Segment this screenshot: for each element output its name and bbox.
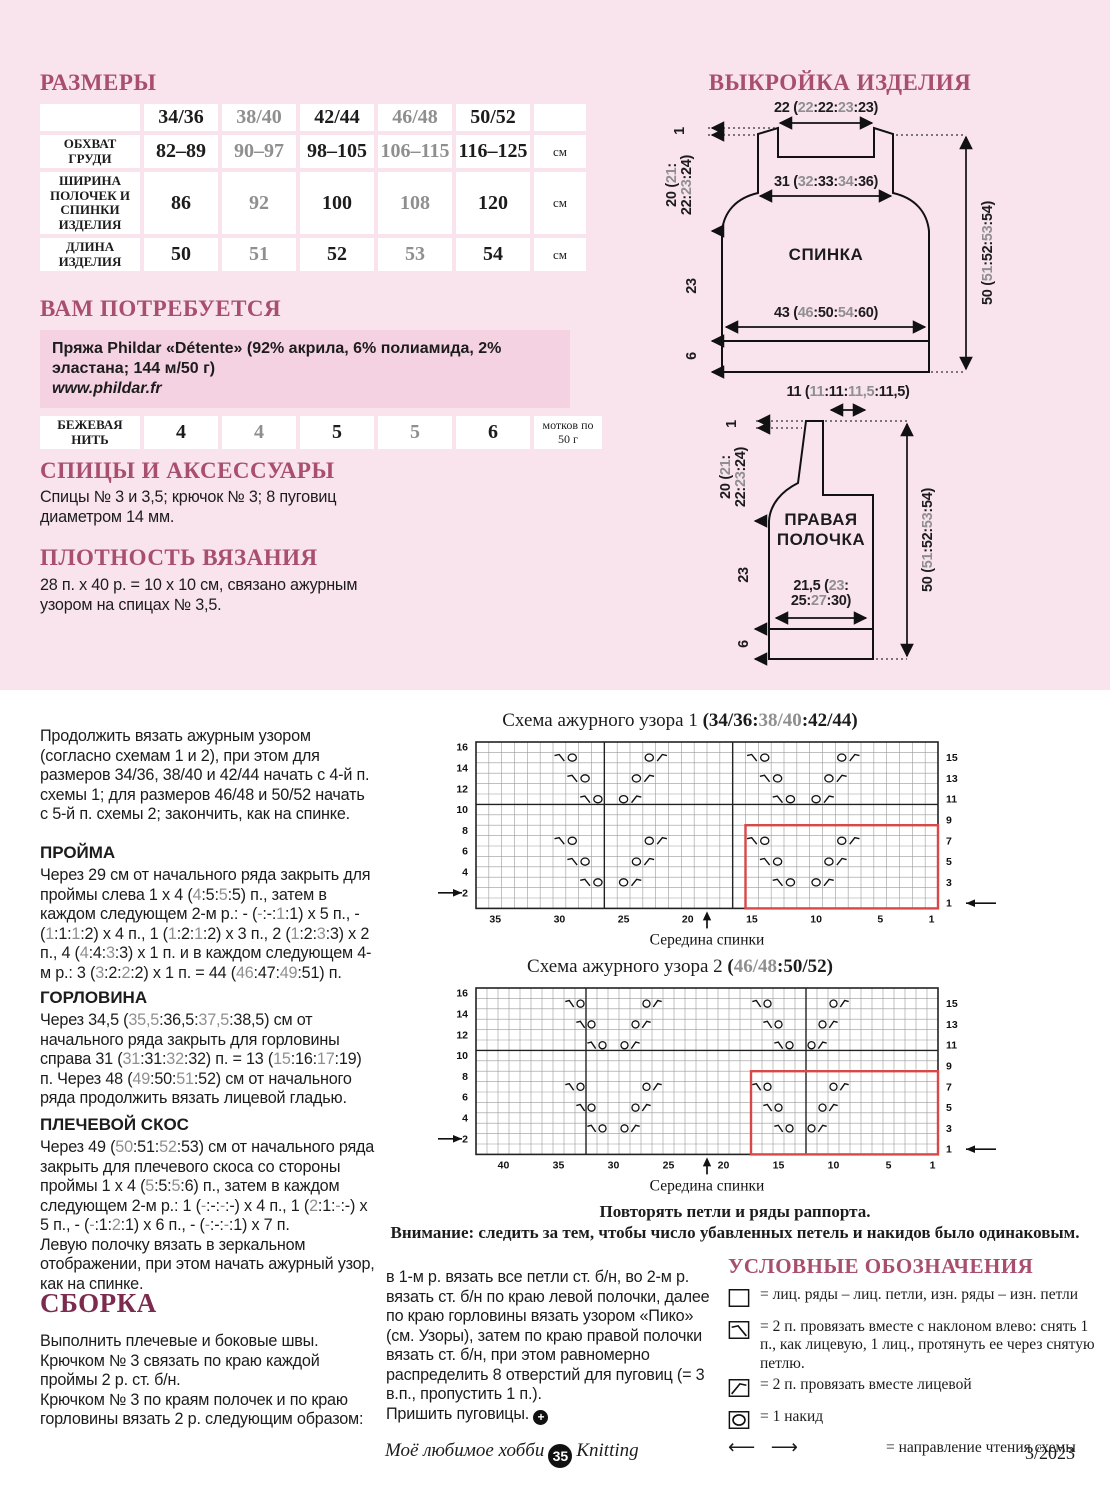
neckline-heading: ГОРЛОВИНА [40, 988, 147, 1008]
back-neck-width-label: 22 (22:22:23:23) [774, 100, 878, 116]
assembly-paragraph: Выполнить плечевые и боковые швы. Крючко… [40, 1332, 376, 1430]
chart-note-1: Повторять петли и ряды раппорта. [390, 1202, 1080, 1222]
svg-text:2: 2 [462, 887, 468, 899]
cell: 4 [222, 416, 296, 449]
svg-text:13: 13 [946, 1019, 958, 1031]
yarn-over-icon [728, 1408, 752, 1437]
footer-magazine: Моё любимое хобби35Knitting [385, 1440, 639, 1468]
shoulder-heading: ПЛЕЧЕВОЙ СКОС [40, 1115, 189, 1135]
front-dim-23: 23 [736, 567, 752, 583]
lace-chart-1: 1614121086421513119753135302520151051Сер… [420, 734, 1100, 952]
svg-text:20: 20 [718, 1159, 730, 1171]
sizes-title: РАЗМЕРЫ [40, 70, 156, 96]
svg-text:Середина спинки: Середина спинки [650, 931, 765, 948]
cell: 106–115 [378, 135, 452, 168]
svg-text:10: 10 [456, 1050, 468, 1062]
svg-text:1: 1 [930, 1159, 936, 1171]
cell: 50 [144, 238, 218, 271]
svg-text:4: 4 [462, 1113, 468, 1125]
svg-text:10: 10 [456, 804, 468, 816]
ssk-decrease-icon [728, 1318, 752, 1374]
legend-item-knit: = лиц. ряды – лиц. петли, изн. ряды – из… [728, 1286, 1104, 1315]
svg-text:2: 2 [462, 1133, 468, 1145]
cell: 92 [222, 172, 296, 234]
unit-cell: см [534, 238, 586, 271]
cell: 98–105 [300, 135, 374, 168]
unit-cell: см [534, 172, 586, 234]
svg-text:11: 11 [946, 794, 957, 806]
svg-text:40: 40 [498, 1159, 510, 1171]
issue-number: 3/2023 [1025, 1443, 1075, 1464]
size-col: 50/52 [456, 104, 530, 131]
svg-text:10: 10 [810, 913, 822, 925]
svg-text:4: 4 [462, 867, 468, 879]
front-height-label: 50 (51:52:53:54) [920, 488, 936, 592]
magazine-name: Моё любимое хобби [385, 1440, 544, 1461]
neckline-paragraph: Через 34,5 (35,5:36,5:37,5:38,5) см от н… [40, 1011, 376, 1109]
cell: 90–97 [222, 135, 296, 168]
cell: 51 [222, 238, 296, 271]
svg-text:5: 5 [877, 913, 883, 925]
svg-text:35: 35 [553, 1159, 565, 1171]
assembly-paragraph-2: в 1-м р. вязать все петли ст. б/н, во 2-… [386, 1268, 718, 1425]
back-piece-diagram: 22 (22:22:23:23) 31 (32:33:34:36) СПИНКА… [650, 95, 1110, 395]
size-col: 46/48 [378, 104, 452, 131]
legend-text: = 2 п. провязать вместе с наклоном влево… [760, 1318, 1104, 1374]
k2tog-decrease-icon [728, 1376, 752, 1405]
svg-text:9: 9 [946, 815, 952, 827]
gauge-title: ПЛОТНОСТЬ ВЯЗАНИЯ [40, 545, 318, 571]
front-width-label: 21,5 (23: 25:27:30) [769, 579, 873, 609]
shoulder-paragraph: Через 49 (50:51:52:53) см от начального … [40, 1138, 376, 1294]
end-of-pattern-icon: + [533, 1410, 548, 1425]
legend-item-k2tog: = 2 п. провязать вместе лицевой [728, 1376, 1104, 1405]
svg-text:8: 8 [462, 825, 468, 837]
svg-text:16: 16 [456, 742, 468, 754]
svg-text:15: 15 [746, 913, 758, 925]
svg-text:14: 14 [456, 1009, 468, 1021]
row-label: ОБХВАТ ГРУДИ [40, 135, 140, 168]
size-col: 38/40 [222, 104, 296, 131]
sizes-table: 34/36 38/40 42/44 46/48 50/52 ОБХВАТ ГРУ… [36, 100, 590, 275]
cell: 120 [456, 172, 530, 234]
lace-chart-2: 161412108642151311975314035302520151051С… [420, 980, 1100, 1198]
cell: 52 [300, 238, 374, 271]
cell: 86 [144, 172, 218, 234]
svg-text:12: 12 [456, 783, 468, 795]
pattern-layout-title: ВЫКРОЙКА ИЗДЕЛИЯ [650, 70, 1030, 96]
legend-title: УСЛОВНЫЕ ОБОЗНАЧЕНИЯ [728, 1254, 1033, 1279]
svg-text:15: 15 [773, 1159, 785, 1171]
legend-list: = лиц. ряды – лиц. петли, изн. ряды – из… [728, 1286, 1104, 1461]
chart-note-2: Внимание: следить за тем, чтобы число уб… [380, 1223, 1090, 1243]
cell: 82–89 [144, 135, 218, 168]
back-dim-20: 20 (21: 22:23:24) [665, 146, 695, 224]
legend-text: = 2 п. провязать вместе лицевой [760, 1376, 972, 1405]
row-label: ШИРИНА ПОЛОЧЕК И СПИНКИ ИЗДЕЛИЯ [40, 172, 140, 234]
cell: 108 [378, 172, 452, 234]
svg-text:5: 5 [886, 1159, 892, 1171]
magazine-brand: Knitting [576, 1440, 638, 1461]
svg-text:13: 13 [946, 773, 958, 785]
assembly-heading: СБОРКА [40, 1288, 157, 1319]
cell: 4 [144, 416, 218, 449]
right-front-diagram: 11 (11:11:11,5:11,5) ПРАВАЯ ПОЛОЧКА 21,5… [650, 382, 1110, 682]
unit-cell: см [534, 135, 586, 168]
svg-text:5: 5 [946, 1102, 952, 1114]
svg-text:9: 9 [946, 1061, 952, 1073]
cell: 6 [456, 416, 530, 449]
front-dim-1: 1 [724, 420, 740, 428]
thread-label: БЕЖЕВАЯ НИТЬ [40, 416, 140, 449]
yarn-description: Пряжа Phildar «Détente» (92% акрила, 6% … [52, 339, 558, 379]
materials-title: ВАМ ПОТРЕБУЕТСЯ [40, 296, 281, 322]
back-bottom-width-label: 43 (46:50:54:60) [774, 305, 878, 321]
front-piece-name: ПРАВАЯ ПОЛОЧКА [761, 510, 881, 550]
legend-item-ssk: = 2 п. провязать вместе с наклоном влево… [728, 1318, 1104, 1374]
intro-paragraph: Продолжить вязать ажурным узором (соглас… [40, 727, 376, 825]
svg-text:3: 3 [946, 877, 952, 889]
svg-text:Середина спинки: Середина спинки [650, 1177, 765, 1194]
svg-text:25: 25 [663, 1159, 675, 1171]
table-row: ОБХВАТ ГРУДИ 82–89 90–97 98–105 106–115 … [40, 135, 586, 168]
chart1-title-text: Схема ажурного узора 1 [502, 710, 702, 731]
svg-text:14: 14 [456, 763, 468, 775]
svg-text:6: 6 [462, 1092, 468, 1104]
size-col: 34/36 [144, 104, 218, 131]
svg-text:7: 7 [946, 835, 952, 847]
back-height-label: 50 (51:52:53:54) [980, 201, 996, 305]
sizes-empty-unit-cell [534, 104, 586, 131]
svg-text:1: 1 [946, 1144, 952, 1156]
legend-text: = 1 накид [760, 1408, 823, 1437]
svg-text:12: 12 [456, 1029, 468, 1041]
chart1-title-sizes: (34/36:38/40:42/44) [703, 710, 858, 731]
svg-text:15: 15 [946, 752, 958, 764]
armhole-paragraph: Через 29 см от начального ряда закрыть д… [40, 866, 376, 983]
table-row: ДЛИНА ИЗДЕЛИЯ 50 51 52 53 54 см [40, 238, 586, 271]
svg-text:3: 3 [946, 1123, 952, 1135]
svg-text:5: 5 [946, 856, 952, 868]
reading-direction-icons: ⟵ ⟶ [728, 1439, 878, 1458]
needles-text: Спицы № 3 и 3,5; крючок № 3; 8 пуговиц д… [40, 488, 385, 527]
svg-text:10: 10 [828, 1159, 840, 1171]
legend-text: = лиц. ряды – лиц. петли, изн. ряды – из… [760, 1286, 1078, 1315]
chart1-title: Схема ажурного узора 1 (34/36:38/40:42/4… [445, 710, 915, 732]
svg-text:8: 8 [462, 1071, 468, 1083]
svg-text:20: 20 [682, 913, 694, 925]
cell: 116–125 [456, 135, 530, 168]
svg-text:30: 30 [554, 913, 566, 925]
chart2-title-text: Схема ажурного узора 2 [527, 956, 727, 977]
front-dim-20: 20 (21: 22:23:24) [719, 438, 749, 516]
cell: 5 [378, 416, 452, 449]
yarn-table: БЕЖЕВАЯ НИТЬ 4 4 5 5 6 мотков по 50 г [36, 412, 606, 453]
front-dim-6: 6 [736, 640, 752, 648]
svg-text:16: 16 [456, 988, 468, 1000]
size-col: 42/44 [300, 104, 374, 131]
svg-text:35: 35 [489, 913, 501, 925]
table-row: ШИРИНА ПОЛОЧЕК И СПИНКИ ИЗДЕЛИЯ 86 92 10… [40, 172, 586, 234]
page-number-badge: 35 [548, 1444, 572, 1468]
yarn-url: www.phildar.fr [52, 379, 558, 399]
svg-text:7: 7 [946, 1081, 952, 1093]
cell: 5 [300, 416, 374, 449]
back-dim-1: 1 [672, 127, 688, 135]
front-shoulder-width-label: 11 (11:11:11,5:11,5) [786, 384, 909, 400]
legend-item-yarnover: = 1 накид [728, 1408, 1104, 1437]
chart2-title-sizes: (46/48:50/52) [727, 956, 833, 977]
armhole-heading: ПРОЙМА [40, 843, 115, 863]
row-label: ДЛИНА ИЗДЕЛИЯ [40, 238, 140, 271]
back-piece-outline [650, 95, 1110, 395]
back-dim-23: 23 [684, 278, 700, 294]
svg-text:1: 1 [946, 898, 952, 910]
knit-stitch-icon [728, 1286, 752, 1315]
svg-text:6: 6 [462, 846, 468, 858]
yarn-info-box: Пряжа Phildar «Détente» (92% акрила, 6% … [40, 330, 570, 408]
cell: 53 [378, 238, 452, 271]
needles-title: СПИЦЫ И АКСЕССУАРЫ [40, 458, 335, 484]
svg-text:25: 25 [618, 913, 630, 925]
svg-text:11: 11 [946, 1040, 957, 1052]
unit-cell: мотков по 50 г [534, 416, 602, 449]
cell: 54 [456, 238, 530, 271]
back-piece-name: СПИНКА [789, 245, 864, 265]
finish-text: Пришить пуговицы. [386, 1405, 529, 1423]
chart2-title: Схема ажурного узора 2 (46/48:50/52) [445, 956, 915, 978]
table-row: БЕЖЕВАЯ НИТЬ 4 4 5 5 6 мотков по 50 г [40, 416, 602, 449]
back-shoulder-width-label: 31 (32:33:34:36) [774, 174, 878, 190]
svg-text:15: 15 [946, 998, 958, 1010]
sizes-header-row: 34/36 38/40 42/44 46/48 50/52 [40, 104, 586, 131]
svg-text:1: 1 [929, 913, 935, 925]
sizes-corner-cell [40, 104, 140, 131]
assembly-text-2: в 1-м р. вязать все петли ст. б/н, во 2-… [386, 1268, 709, 1403]
back-dim-6: 6 [684, 352, 700, 360]
svg-text:30: 30 [608, 1159, 620, 1171]
cell: 100 [300, 172, 374, 234]
gauge-text: 28 п. х 40 р. = 10 х 10 см, связано ажур… [40, 576, 385, 615]
